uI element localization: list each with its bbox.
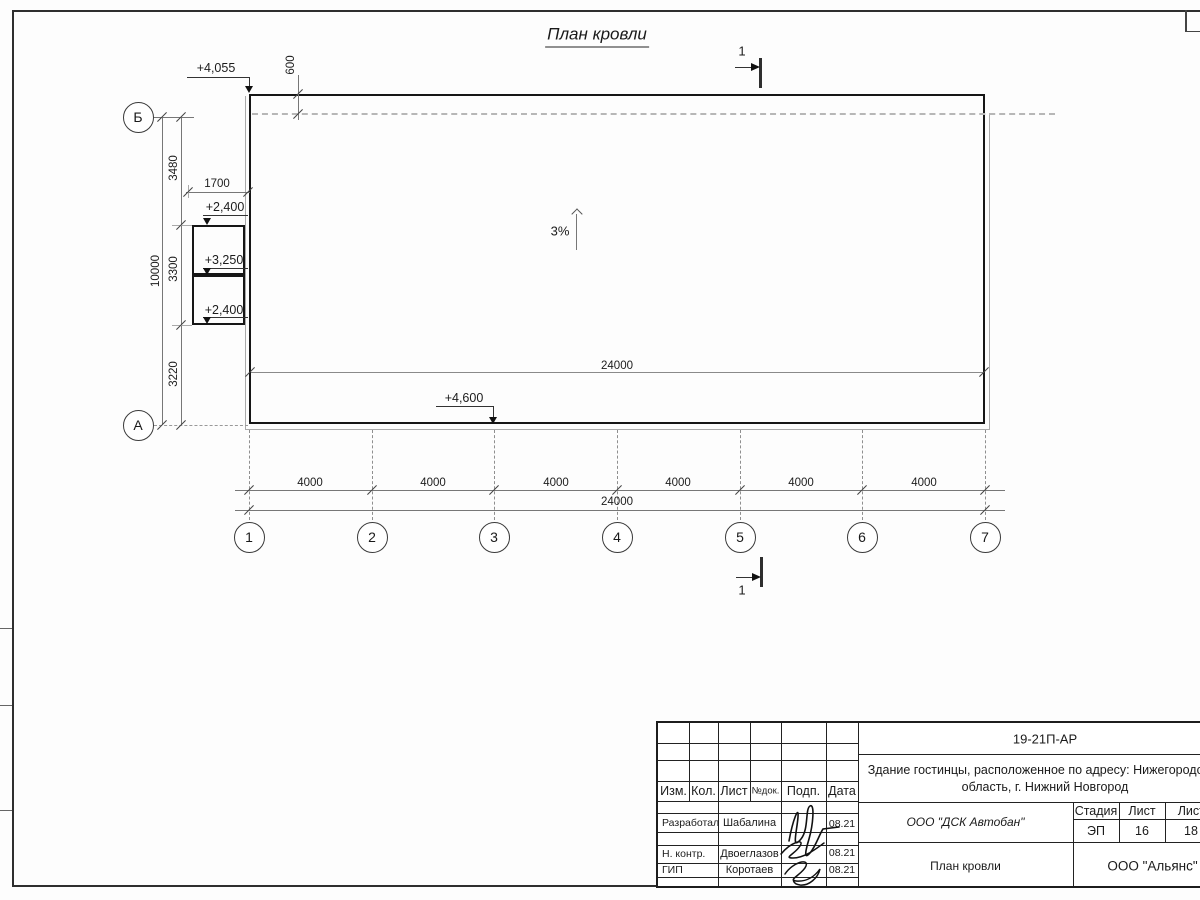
margin-tick bbox=[0, 705, 12, 706]
dim-label-10000: 10000 bbox=[150, 255, 162, 287]
slope-label: 3% bbox=[551, 224, 570, 239]
dim-line-total bbox=[235, 510, 1005, 511]
dim-label-4000: 4000 bbox=[543, 477, 569, 489]
dim-label-3480: 3480 bbox=[168, 155, 180, 181]
tb-sheet-header: Лист bbox=[1128, 804, 1155, 818]
tb-line bbox=[1119, 802, 1120, 842]
parapet-dashed-line bbox=[252, 113, 1055, 115]
dim-line-bays bbox=[235, 490, 1005, 491]
dim-label-24000-inner: 24000 bbox=[601, 360, 633, 372]
frame-top bbox=[12, 10, 1200, 12]
inner-dim-line bbox=[251, 372, 984, 373]
tb-date: 08.21 bbox=[829, 864, 855, 876]
elevation-leader bbox=[436, 406, 493, 407]
tb-company: ООО "ДСК Автобан" bbox=[906, 815, 1024, 829]
dim-label-600: 600 bbox=[285, 55, 297, 74]
tb-line bbox=[658, 760, 858, 761]
tb-line bbox=[858, 754, 1200, 755]
elevation-arrow bbox=[245, 86, 253, 93]
margin-tick bbox=[0, 628, 12, 629]
elevation-label: +4,055 bbox=[197, 61, 236, 75]
grid-extension bbox=[740, 430, 741, 520]
signature bbox=[777, 836, 829, 888]
tb-line bbox=[658, 743, 858, 744]
elevation-arrow bbox=[203, 268, 211, 275]
dim-label-4000: 4000 bbox=[420, 477, 446, 489]
frame-left bbox=[12, 10, 14, 887]
tb-name: Двоеглазов bbox=[720, 848, 778, 860]
tb-header-data: Дата bbox=[828, 784, 856, 798]
section-label-bottom: 1 bbox=[738, 583, 745, 598]
tb-project-line1: Здание гостинцы, расположенное по адресу… bbox=[868, 763, 1200, 777]
dim-label-4000: 4000 bbox=[788, 477, 814, 489]
tb-sheets-value: 18 bbox=[1184, 824, 1198, 838]
roof-edge-thin-right bbox=[989, 113, 990, 429]
elevation-label: +4,600 bbox=[445, 391, 484, 405]
margin-tick bbox=[0, 810, 12, 811]
dim-line-1700 bbox=[186, 192, 250, 193]
axis-bubble-5: 5 bbox=[725, 522, 756, 553]
dim-label-4000: 4000 bbox=[665, 477, 691, 489]
dim-label-4000: 4000 bbox=[297, 477, 323, 489]
tb-header-podp: Подп. bbox=[787, 784, 820, 798]
tb-header-izm: Изм. bbox=[660, 784, 687, 798]
elevation-label: +3,250 bbox=[205, 253, 244, 267]
title-block: Изм. Кол. Лист №док. Подп. Дата Разработ… bbox=[656, 721, 1200, 888]
dim-label-24000: 24000 bbox=[601, 496, 633, 508]
section-arrow bbox=[752, 573, 761, 581]
tb-header-kol: Кол. bbox=[691, 784, 716, 798]
section-label-top: 1 bbox=[738, 44, 745, 59]
grid-extension bbox=[862, 430, 863, 520]
tb-line bbox=[658, 781, 858, 782]
axis-bubble-4: 4 bbox=[602, 522, 633, 553]
tb-name: Коротаев bbox=[726, 864, 774, 876]
tb-role: Н. контр. bbox=[662, 848, 705, 860]
tb-line bbox=[718, 723, 719, 886]
axis-bubble-6: 6 bbox=[847, 522, 878, 553]
roof-outline bbox=[249, 94, 985, 424]
elevation-label: +2,400 bbox=[206, 200, 245, 214]
axis-bubble-7: 7 bbox=[970, 522, 1001, 553]
axis-line-A bbox=[154, 425, 248, 426]
tb-sheet-value: 16 bbox=[1135, 824, 1149, 838]
dim-label-4000: 4000 bbox=[911, 477, 937, 489]
grid-extension bbox=[494, 430, 495, 520]
sheet: { "colors": { "ink": "#1a1a1a", "thin_li… bbox=[0, 0, 1200, 900]
tb-line bbox=[1073, 819, 1200, 820]
axis-bubble-2: 2 bbox=[357, 522, 388, 553]
tb-header-ndok: №док. bbox=[752, 786, 780, 797]
elevation-arrow bbox=[203, 317, 211, 324]
corner-box-line bbox=[1185, 10, 1187, 31]
dim-label-1700: 1700 bbox=[204, 178, 230, 190]
tb-role: ГИП bbox=[662, 864, 683, 876]
tb-sheet-title: План кровли bbox=[930, 859, 1001, 873]
dim-label-3300: 3300 bbox=[168, 256, 180, 282]
ext-line bbox=[172, 325, 192, 326]
tb-line bbox=[858, 723, 859, 886]
axis-bubble-A: А bbox=[123, 410, 154, 441]
dim-line-3480-3300-3220 bbox=[181, 117, 182, 425]
section-cut-bar bbox=[760, 557, 763, 587]
tb-org: ООО "Альянс" bbox=[1107, 859, 1197, 874]
tb-sheets-header: Листов bbox=[1178, 804, 1200, 818]
axis-bubble-3: 3 bbox=[479, 522, 510, 553]
tb-stage-header: Стадия bbox=[1075, 804, 1118, 818]
tb-name: Шабалина bbox=[723, 817, 776, 829]
dim-label-3220: 3220 bbox=[168, 361, 180, 387]
ext-line bbox=[172, 225, 192, 226]
elevation-leader bbox=[493, 406, 494, 417]
grid-extension bbox=[372, 430, 373, 520]
tb-line bbox=[858, 842, 1200, 843]
tb-header-list: Лист bbox=[720, 784, 747, 798]
dim-line-10000 bbox=[162, 117, 163, 425]
tb-line bbox=[1165, 802, 1166, 842]
elevation-label: +2,400 bbox=[205, 303, 244, 317]
axis-bubble-1: 1 bbox=[234, 522, 265, 553]
corner-box-line bbox=[1185, 31, 1200, 32]
tb-project-line2: область, г. Нижний Новгород bbox=[962, 780, 1129, 794]
drawing-title: План кровли bbox=[545, 25, 649, 48]
tb-line bbox=[689, 723, 690, 801]
tb-stage-value: ЭП bbox=[1087, 824, 1105, 838]
tb-doc-number: 19-21П-АР bbox=[1013, 732, 1077, 747]
section-arrow bbox=[751, 63, 760, 71]
elevation-leader bbox=[203, 215, 248, 216]
tb-role: Разработал bbox=[662, 817, 719, 829]
elevation-leader bbox=[187, 77, 249, 78]
elevation-arrow bbox=[203, 218, 211, 225]
elevation-arrow bbox=[489, 417, 497, 424]
roof-edge-thin-left bbox=[245, 96, 246, 429]
axis-bubble-B: Б bbox=[123, 102, 154, 133]
